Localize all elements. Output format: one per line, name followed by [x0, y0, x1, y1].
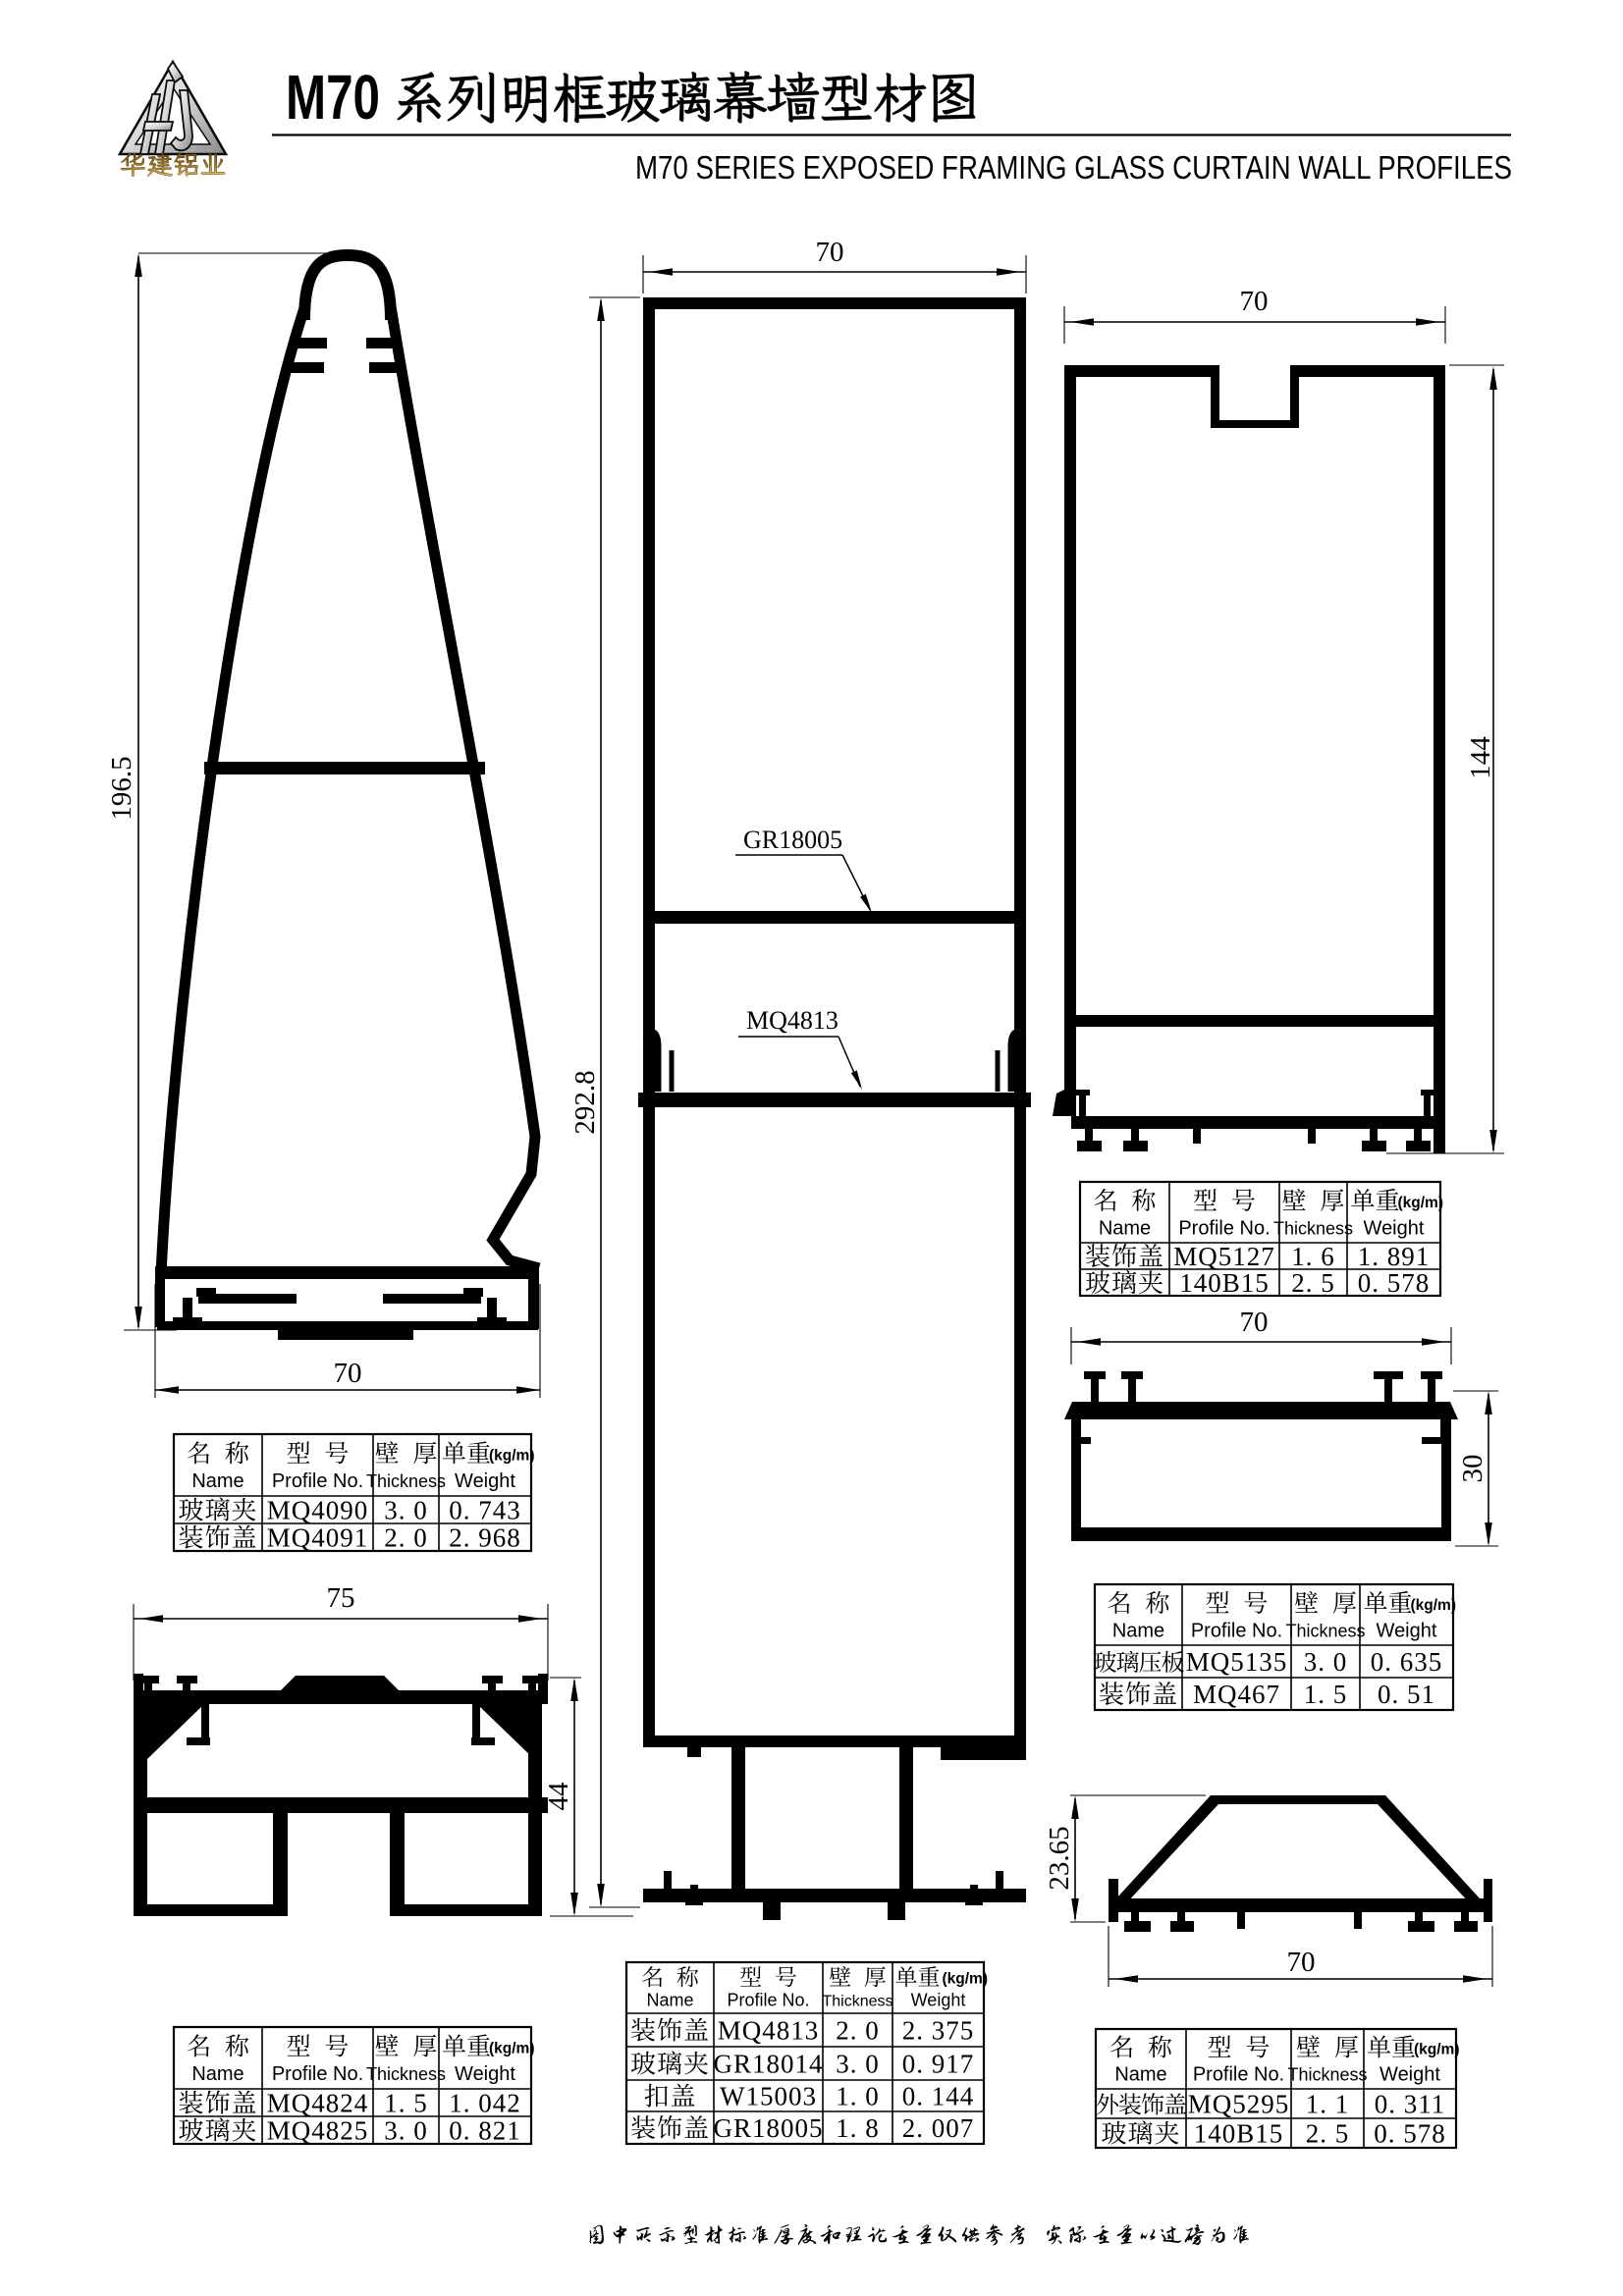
svg-text:0. 821: 0. 821	[449, 2116, 521, 2146]
svg-text:Profile No.: Profile No.	[1178, 1217, 1270, 1239]
svg-text:2. 0: 2. 0	[384, 1523, 428, 1553]
svg-text:0. 635: 0. 635	[1371, 1647, 1443, 1677]
svg-text:1. 5: 1. 5	[1304, 1680, 1348, 1709]
svg-text:(kg/m): (kg/m)	[943, 1970, 989, 1987]
svg-text:1. 6: 1. 6	[1291, 1242, 1335, 1271]
svg-text:196.5: 196.5	[106, 756, 137, 820]
svg-text:1. 891: 1. 891	[1358, 1242, 1431, 1271]
svg-text:Name: Name	[191, 1470, 243, 1492]
svg-text:2. 5: 2. 5	[1306, 2119, 1350, 2149]
svg-text:Thickness: Thickness	[1273, 1218, 1353, 1238]
svg-text:0. 144: 0. 144	[902, 2082, 975, 2111]
svg-text:MQ5127: MQ5127	[1173, 1242, 1275, 1271]
svg-text:70: 70	[1240, 286, 1269, 317]
svg-text:Thickness: Thickness	[366, 1471, 446, 1491]
svg-text:140B15: 140B15	[1179, 1268, 1270, 1298]
svg-text:Weight: Weight	[455, 1470, 515, 1492]
svg-text:Name: Name	[191, 2063, 243, 2085]
svg-text:M70: M70	[286, 62, 380, 133]
svg-text:M70 SERIES EXPOSED FRAMING GLA: M70 SERIES EXPOSED FRAMING GLASS CURTAIN…	[635, 149, 1512, 186]
svg-text:GR18005: GR18005	[713, 2113, 823, 2143]
svg-text:(kg/m): (kg/m)	[1411, 1597, 1457, 1614]
svg-text:0. 743: 0. 743	[449, 1496, 521, 1525]
svg-text:70: 70	[334, 1358, 362, 1389]
svg-text:70: 70	[816, 237, 844, 268]
svg-text:3. 0: 3. 0	[836, 2050, 880, 2079]
svg-text:Thickness: Thickness	[366, 2064, 446, 2084]
svg-text:Weight: Weight	[1377, 1620, 1437, 1641]
svg-text:MQ467: MQ467	[1193, 1680, 1280, 1709]
svg-text:MQ5295: MQ5295	[1188, 2090, 1290, 2119]
svg-text:1. 042: 1. 042	[449, 2089, 521, 2118]
svg-text:75: 75	[327, 1582, 355, 1614]
svg-text:2. 5: 2. 5	[1291, 1268, 1335, 1298]
svg-text:0. 578: 0. 578	[1358, 1268, 1431, 1298]
svg-text:GR18005: GR18005	[743, 826, 842, 854]
svg-text:GR18014: GR18014	[713, 2050, 823, 2079]
svg-text:3. 0: 3. 0	[384, 1496, 428, 1525]
svg-text:W15003: W15003	[720, 2082, 817, 2111]
svg-text:Name: Name	[1112, 1620, 1164, 1641]
svg-text:292.8: 292.8	[569, 1070, 601, 1134]
svg-text:2. 968: 2. 968	[449, 1523, 521, 1553]
svg-text:44: 44	[543, 1782, 574, 1811]
svg-text:Profile No.: Profile No.	[727, 1991, 809, 2010]
svg-text:Weight: Weight	[455, 2063, 515, 2085]
svg-text:MQ4091: MQ4091	[267, 1523, 369, 1553]
svg-text:1. 1: 1. 1	[1306, 2090, 1350, 2119]
svg-text:MQ4824: MQ4824	[267, 2089, 369, 2118]
svg-text:0. 311: 0. 311	[1375, 2090, 1446, 2119]
svg-text:30: 30	[1457, 1455, 1488, 1483]
svg-text:1. 8: 1. 8	[836, 2113, 880, 2143]
svg-text:MQ4813: MQ4813	[718, 2016, 820, 2046]
svg-text:Weight: Weight	[1380, 2064, 1440, 2086]
svg-text:Profile No.: Profile No.	[272, 2063, 363, 2085]
svg-text:(kg/m): (kg/m)	[1398, 1195, 1444, 1211]
svg-text:144: 144	[1465, 736, 1496, 779]
svg-text:Thickness: Thickness	[1287, 2065, 1367, 2085]
svg-text:Weight: Weight	[911, 1991, 966, 2010]
svg-text:Name: Name	[646, 1991, 693, 2010]
svg-text:1. 0: 1. 0	[836, 2082, 880, 2111]
svg-text:23.65: 23.65	[1044, 1826, 1075, 1890]
svg-text:2. 007: 2. 007	[902, 2113, 975, 2143]
svg-text:Profile No.: Profile No.	[1191, 1620, 1282, 1641]
svg-text:Profile No.: Profile No.	[1193, 2064, 1284, 2086]
svg-text:(kg/m): (kg/m)	[1414, 2041, 1460, 2057]
svg-text:Profile No.: Profile No.	[272, 1470, 363, 1492]
svg-text:Name: Name	[1114, 2064, 1166, 2086]
svg-text:140B15: 140B15	[1194, 2119, 1284, 2149]
svg-text:Weight: Weight	[1364, 1217, 1425, 1239]
svg-text:0. 917: 0. 917	[902, 2050, 975, 2079]
svg-text:0. 51: 0. 51	[1378, 1680, 1435, 1709]
svg-text:MQ5135: MQ5135	[1186, 1647, 1288, 1677]
svg-text:2. 375: 2. 375	[902, 2016, 975, 2046]
svg-text:MQ4090: MQ4090	[267, 1496, 369, 1525]
svg-text:(kg/m): (kg/m)	[489, 2040, 535, 2056]
svg-text:MQ4825: MQ4825	[267, 2116, 369, 2146]
svg-text:70: 70	[1240, 1307, 1269, 1338]
svg-text:0. 578: 0. 578	[1374, 2119, 1446, 2149]
svg-text:Thickness: Thickness	[822, 1994, 893, 2010]
svg-text:Thickness: Thickness	[1285, 1621, 1365, 1640]
svg-text:Name: Name	[1099, 1217, 1151, 1239]
svg-text:1. 5: 1. 5	[384, 2089, 428, 2118]
svg-text:(kg/m): (kg/m)	[489, 1447, 535, 1464]
svg-text:3. 0: 3. 0	[384, 2116, 428, 2146]
svg-text:2. 0: 2. 0	[836, 2016, 880, 2046]
svg-text:MQ4813: MQ4813	[746, 1006, 839, 1035]
svg-text:70: 70	[1287, 1947, 1316, 1978]
svg-text:3. 0: 3. 0	[1304, 1647, 1348, 1677]
